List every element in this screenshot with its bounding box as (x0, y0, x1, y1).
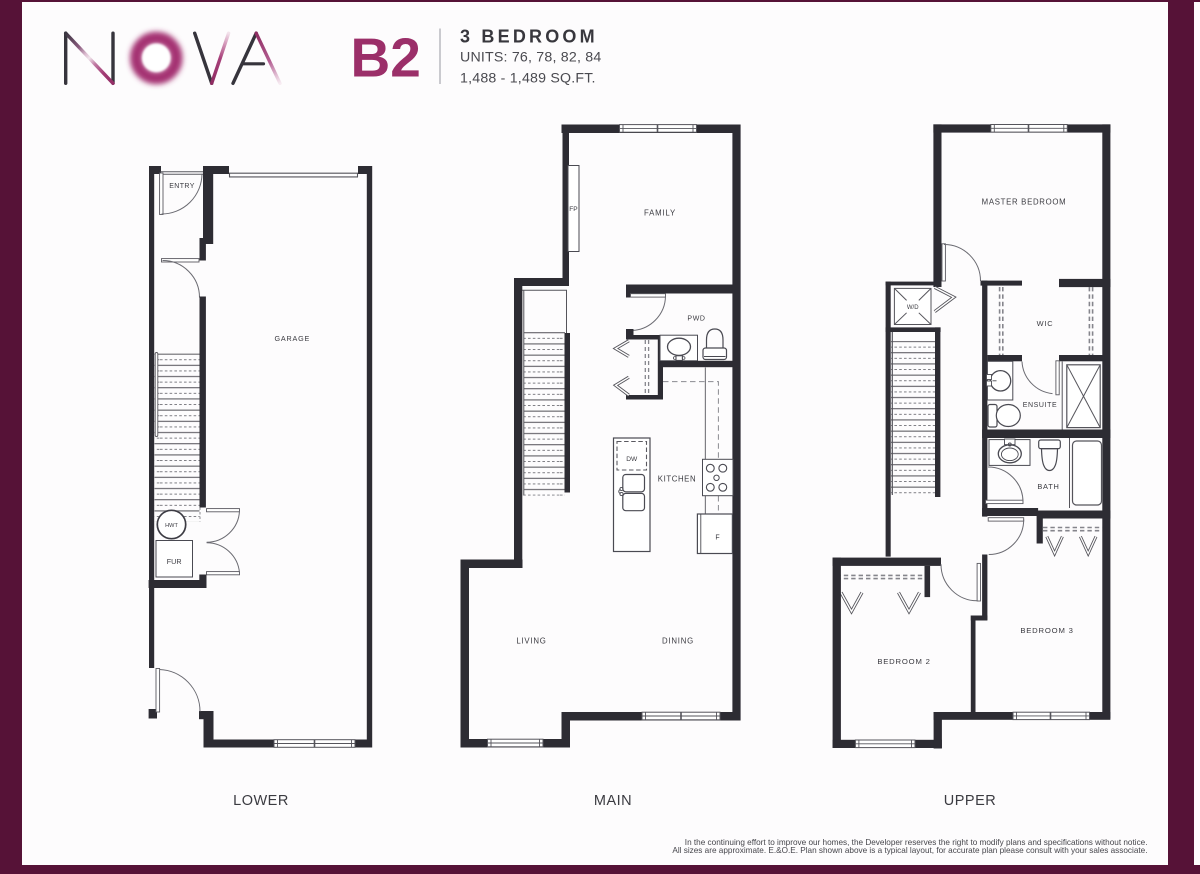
svg-text:W/D: W/D (907, 305, 919, 311)
svg-text:LIVING: LIVING (516, 637, 546, 646)
svg-text:FUR: FUR (167, 557, 182, 566)
svg-text:ENTRY: ENTRY (169, 183, 195, 190)
svg-text:F: F (715, 535, 719, 542)
svg-text:MAIN: MAIN (594, 793, 632, 809)
svg-text:BEDROOM 2: BEDROOM 2 (877, 657, 930, 666)
svg-text:FP: FP (569, 206, 578, 213)
svg-text:B2: B2 (351, 27, 421, 89)
svg-text:PWD: PWD (687, 316, 705, 323)
svg-text:UPPER: UPPER (944, 793, 996, 809)
svg-text:KITCHEN: KITCHEN (658, 475, 696, 484)
svg-text:DINING: DINING (662, 637, 694, 646)
svg-text:1,488 - 1,489 SQ.FT.: 1,488 - 1,489 SQ.FT. (460, 71, 596, 87)
svg-text:BEDROOM 3: BEDROOM 3 (1020, 626, 1073, 635)
svg-text:BATH: BATH (1037, 482, 1059, 491)
svg-text:3 BEDROOM: 3 BEDROOM (460, 27, 598, 47)
svg-text:LOWER: LOWER (233, 793, 289, 809)
svg-text:MASTER BEDROOM: MASTER BEDROOM (982, 198, 1067, 207)
svg-text:WIC: WIC (1037, 319, 1054, 328)
svg-text:HWT: HWT (165, 523, 178, 529)
svg-text:All sizes are approximate. E.&: All sizes are approximate. E.&O.E. Plan … (672, 846, 1147, 855)
svg-text:GARAGE: GARAGE (275, 334, 311, 343)
svg-text:ENSUITE: ENSUITE (1023, 402, 1058, 409)
svg-text:DW: DW (626, 456, 638, 463)
svg-text:UNITS: 76, 78, 82, 84: UNITS: 76, 78, 82, 84 (460, 50, 601, 66)
svg-text:FAMILY: FAMILY (644, 209, 676, 218)
